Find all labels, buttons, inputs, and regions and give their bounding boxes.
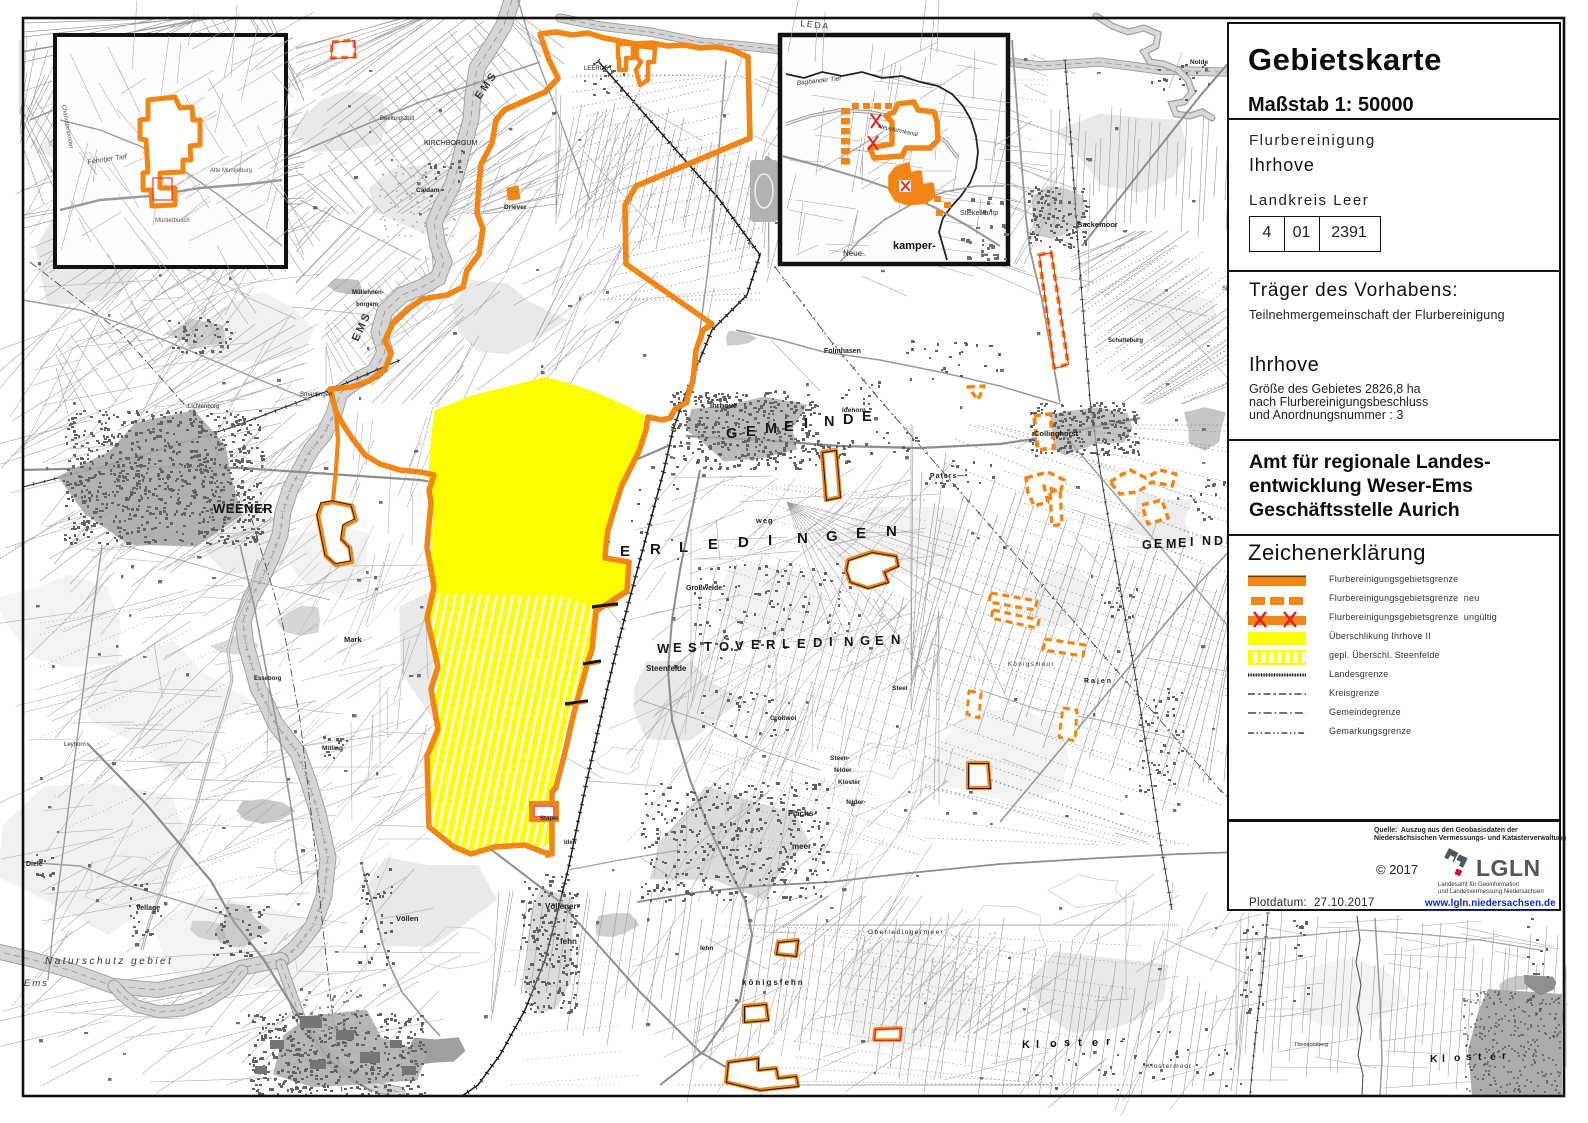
svg-text:Flachs-: Flachs- — [788, 809, 816, 818]
svg-text:kamper-: kamper- — [893, 240, 936, 252]
svg-text:LEERORT: LEERORT — [584, 66, 613, 72]
svg-text:Großwelde: Großwelde — [686, 585, 722, 592]
svg-text:N: N — [824, 414, 834, 430]
svg-text:I: I — [829, 634, 833, 649]
svg-text:G: G — [1142, 538, 1152, 552]
svg-text:Iehn: Iehn — [700, 945, 713, 952]
svg-text:Klostermoor: Klostermoor — [1146, 1063, 1192, 1070]
svg-text:Theodorsberg: Theodorsberg — [1294, 1042, 1328, 1048]
svg-text:L: L — [679, 539, 688, 556]
svg-text:R: R — [650, 541, 661, 558]
svg-text:-: - — [1120, 1035, 1124, 1047]
svg-text:G: G — [860, 633, 870, 648]
svg-text:K: K — [1430, 1053, 1438, 1065]
svg-text:N: N — [1202, 534, 1211, 548]
svg-text:Leyhorn: Leyhorn — [64, 742, 86, 748]
svg-text:E: E — [1154, 537, 1162, 551]
svg-text:V: V — [735, 638, 744, 653]
svg-text:s: s — [1064, 1037, 1070, 1049]
svg-text:KIRCHBORGUM: KIRCHBORGUM — [424, 140, 477, 147]
svg-text:Mark: Mark — [344, 635, 362, 644]
svg-text:M: M — [1166, 537, 1176, 551]
svg-text:weg: weg — [755, 516, 774, 525]
svg-text:D: D — [1214, 534, 1223, 548]
svg-text:Rajen: Rajen — [1084, 678, 1113, 685]
svg-text:Müllehnen-: Müllehnen- — [352, 290, 384, 296]
svg-text:Vellage: Vellage — [136, 905, 160, 912]
svg-text:E: E — [1178, 536, 1186, 550]
svg-text:Stiekelkamp: Stiekelkamp — [960, 210, 998, 217]
svg-text:Beelungszolt: Beelungszolt — [380, 116, 415, 122]
svg-text:E: E — [673, 640, 682, 655]
svg-text:Münterbusch: Münterbusch — [155, 218, 190, 224]
svg-text:Steel: Steel — [892, 685, 908, 692]
svg-text:E: E — [620, 543, 630, 560]
svg-text:Backemoor: Backemoor — [1077, 220, 1118, 229]
svg-text:Oberledingermeer: Oberledingermeer — [868, 929, 944, 936]
svg-text:W: W — [657, 641, 670, 656]
svg-text:Völlen: Völlen — [396, 914, 419, 923]
svg-text:meer: meer — [792, 842, 811, 851]
svg-text:N: N — [891, 632, 900, 647]
svg-text:R: R — [766, 637, 776, 652]
svg-text:I: I — [1190, 535, 1193, 549]
svg-text:E: E — [751, 637, 760, 652]
svg-text:t: t — [1478, 1051, 1482, 1063]
svg-text:o: o — [1454, 1052, 1460, 1064]
svg-text:Völlener-: Völlener- — [545, 902, 580, 911]
svg-text:königsfehn: königsfehn — [742, 978, 805, 987]
svg-text:L: L — [782, 636, 790, 651]
svg-text:Caldam: Caldam — [416, 187, 440, 194]
svg-text:Collinghorst: Collinghorst — [1034, 429, 1079, 438]
svg-text:s: s — [1466, 1051, 1472, 1063]
svg-text:E: E — [856, 525, 866, 542]
svg-text:Schatteburg: Schatteburg — [1108, 338, 1143, 344]
svg-text:T: T — [704, 639, 712, 654]
svg-text:D: D — [738, 534, 749, 551]
svg-text:D: D — [843, 412, 853, 428]
svg-text:borgem: borgem — [356, 302, 378, 308]
svg-text:E: E — [875, 633, 884, 648]
svg-text:Idehorn: Idehorn — [842, 407, 866, 414]
svg-text:Naturschutz gebiet: Naturschutz gebiet — [45, 956, 173, 967]
svg-text:Lichtenborg: Lichtenborg — [188, 404, 219, 410]
svg-text:fehn: fehn — [560, 937, 577, 946]
svg-text:Mitling: Mitling — [322, 745, 343, 752]
svg-text:M: M — [765, 421, 777, 437]
svg-text:D: D — [813, 635, 822, 650]
svg-text:Königsmoor: Königsmoor — [1008, 662, 1055, 668]
svg-text:r: r — [1502, 1050, 1506, 1062]
svg-text:E: E — [784, 419, 794, 435]
svg-text:Ihrhove: Ihrhove — [710, 401, 737, 410]
svg-text:S: S — [688, 640, 697, 655]
svg-text:Steenfelde: Steenfelde — [646, 664, 687, 673]
svg-text:Paters—: Paters— — [930, 473, 965, 480]
svg-text:K: K — [1022, 1039, 1030, 1051]
svg-text:O: O — [719, 639, 729, 654]
svg-text:e: e — [1092, 1037, 1098, 1049]
svg-text:l: l — [1442, 1053, 1445, 1065]
svg-text:N: N — [844, 634, 853, 649]
svg-text:Kloster: Kloster — [838, 779, 861, 786]
svg-text:Alte Muntjeburg: Alte Muntjeburg — [210, 168, 252, 174]
svg-text:Diele: Diele — [26, 861, 43, 868]
svg-text:I: I — [768, 532, 772, 549]
svg-text:Smardingen: Smardingen — [300, 392, 332, 398]
svg-text:Driever: Driever — [504, 204, 527, 211]
svg-text:felder-: felder- — [846, 799, 866, 806]
svg-text:Folmhasen: Folmhasen — [824, 348, 861, 355]
svg-text:Großwol: Großwol — [770, 715, 797, 722]
svg-text:N: N — [797, 530, 808, 547]
svg-text:e: e — [1490, 1051, 1496, 1063]
svg-text:felder: felder — [834, 767, 852, 774]
svg-text:Esseborg: Esseborg — [254, 676, 282, 682]
svg-text:t: t — [1078, 1037, 1082, 1049]
svg-text:Iden: Iden — [564, 840, 577, 846]
svg-text:I: I — [804, 416, 808, 432]
svg-text:E: E — [708, 536, 718, 553]
svg-text:E: E — [746, 424, 756, 440]
svg-text:Ems: Ems — [24, 978, 49, 989]
svg-text:Stapel: Stapel — [540, 816, 558, 822]
svg-text:Nolde: Nolde — [1190, 59, 1208, 66]
svg-text:WEENER: WEENER — [213, 501, 273, 516]
svg-text:G: G — [726, 426, 737, 442]
svg-text:E: E — [797, 636, 806, 651]
svg-text:N: N — [886, 523, 897, 540]
svg-text:o: o — [1050, 1038, 1057, 1050]
svg-text:Neue-: Neue- — [843, 249, 865, 258]
svg-text:r: r — [1106, 1036, 1111, 1048]
svg-text:G: G — [826, 528, 838, 545]
svg-text:l: l — [1036, 1039, 1039, 1051]
svg-text:Steen-: Steen- — [830, 755, 850, 762]
